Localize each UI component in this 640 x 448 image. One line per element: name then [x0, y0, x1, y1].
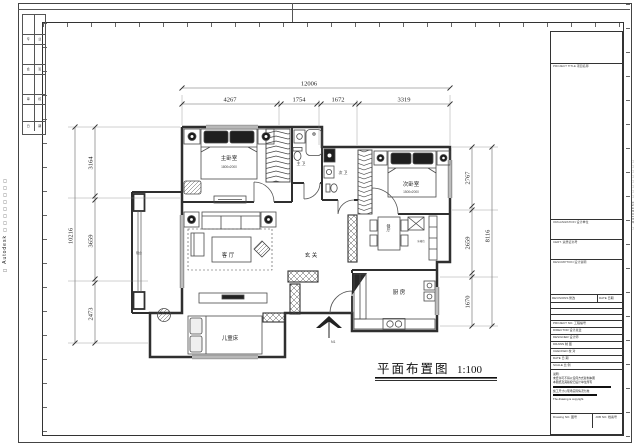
second-bath-fixtures: [324, 149, 337, 192]
master-bedroom-label: 主卧室: [221, 154, 238, 162]
balcony: 阳台: [132, 192, 182, 313]
balcony-column: [134, 194, 145, 211]
sofa: [202, 212, 260, 229]
balcony-label: 阳台: [136, 250, 142, 255]
counter-bottom: [354, 319, 435, 329]
second-bedroom-door: [372, 188, 398, 214]
master-bedroom-door: [254, 182, 274, 202]
fridge-label: 冰箱位: [417, 239, 425, 243]
second-bed-size: 1500x2000: [403, 190, 419, 194]
children-room-label: 儿童床: [222, 334, 239, 342]
dim-right-seg: 2659: [465, 237, 472, 250]
toilet: [294, 152, 301, 161]
toilet: [331, 184, 337, 192]
chair: [401, 220, 408, 231]
sink: [294, 130, 305, 143]
bathtub: [306, 130, 322, 156]
second-bath-door: [338, 200, 354, 214]
armchair: [191, 233, 204, 256]
toilet-tank: [293, 148, 302, 152]
hall-closet: [358, 150, 372, 214]
dim-top-seg: 3319: [398, 97, 411, 104]
chair: [370, 235, 377, 246]
dim-right-seg: 2767: [465, 171, 472, 185]
master-bath-door: [304, 183, 320, 199]
dim-right-seg: 1670: [465, 296, 472, 309]
second-bath-label: 次 卫: [338, 169, 347, 175]
chair: [401, 235, 408, 246]
master-bath-fixtures: [293, 130, 322, 161]
chair: [370, 220, 377, 231]
dining-furniture: [370, 216, 437, 260]
plan-title-text: 平面布置图: [377, 362, 450, 376]
children-room-furniture: [158, 309, 263, 355]
side-table: [254, 241, 270, 257]
north-arrow: N1: [316, 316, 342, 344]
kitchen-label: 厨 房: [393, 288, 406, 296]
sink: [424, 281, 435, 290]
second-bedroom-label: 次卧室: [403, 180, 420, 188]
bedroom-chair: [184, 181, 201, 194]
toilet-tank: [326, 184, 330, 192]
balcony-column: [134, 292, 145, 309]
plan-title-scale: 1:100: [457, 364, 483, 376]
dim-right-total: 8116: [485, 229, 492, 243]
master-bed-size: 1800x2000: [221, 165, 237, 169]
dim-top-seg: 1754: [293, 97, 307, 104]
sink: [324, 166, 334, 178]
dim-left-seg: 3164: [88, 156, 95, 170]
plan-title: 平面布置图 1:100: [375, 362, 497, 381]
dim-left-total: 10216: [68, 227, 75, 244]
kitchen-fixtures: [354, 274, 435, 330]
dim-top-total: 12006: [301, 81, 318, 88]
sink: [424, 292, 435, 301]
structural-columns: [263, 215, 357, 322]
plant: [158, 309, 171, 322]
dim-top-seg: 4267: [224, 97, 238, 104]
dim-left-seg: 2473: [88, 308, 95, 321]
north-arrow-label: N1: [331, 340, 336, 344]
master-bath-label: 主 卫: [296, 160, 305, 166]
tv: [222, 295, 244, 299]
dim-top-seg: 1672: [332, 97, 345, 104]
dim-left-seg: 3659: [88, 235, 95, 248]
dining-label: 餐厅: [387, 223, 392, 232]
floor-plan: 阳台: [0, 0, 640, 448]
entry-label: 玄 关: [305, 251, 318, 259]
entrance-door: [330, 291, 352, 313]
living-room-label: 客 厅: [222, 251, 235, 259]
dining-table: [378, 217, 400, 250]
